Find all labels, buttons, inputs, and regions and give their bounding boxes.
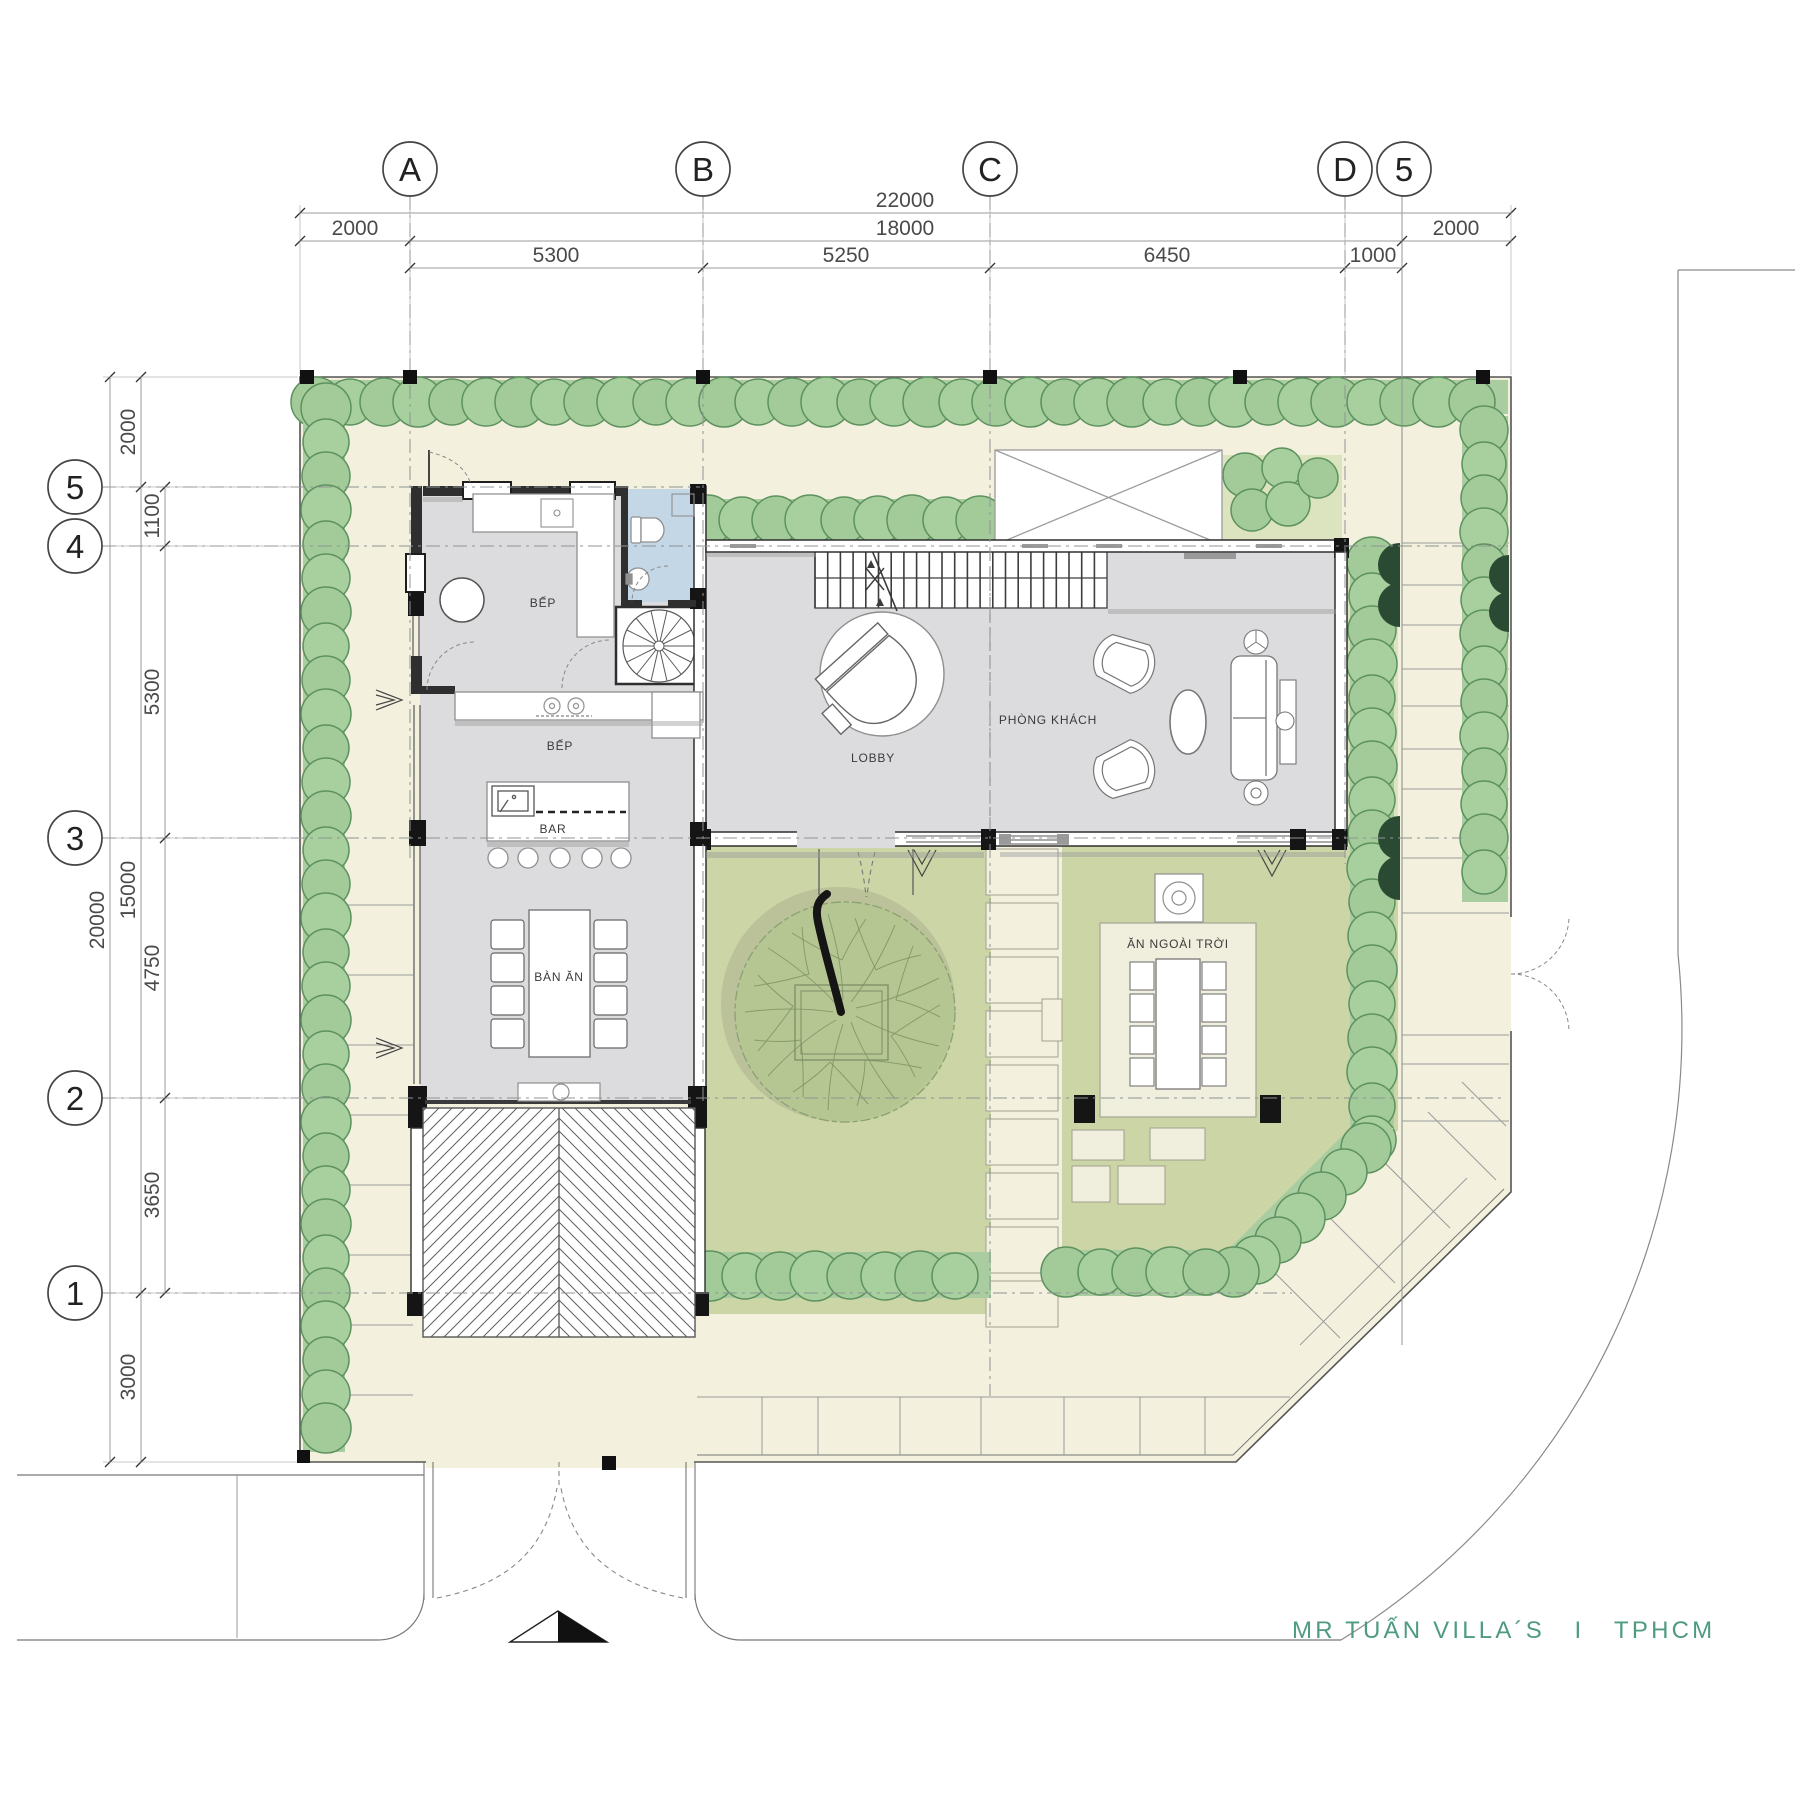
svg-text:1000: 1000 — [1350, 244, 1397, 267]
svg-text:C: C — [978, 151, 1002, 188]
svg-text:BAR: BAR — [539, 822, 566, 836]
svg-text:LOBBY: LOBBY — [851, 751, 895, 765]
svg-text:1: 1 — [66, 1275, 84, 1312]
svg-text:5300: 5300 — [141, 669, 164, 716]
svg-text:BÀN ĂN: BÀN ĂN — [534, 969, 583, 984]
svg-text:18000: 18000 — [876, 217, 934, 240]
svg-text:ĂN NGOÀI TRỜI: ĂN NGOÀI TRỜI — [1127, 936, 1229, 951]
svg-text:PHÒNG KHÁCH: PHÒNG KHÁCH — [999, 712, 1097, 727]
svg-text:BẾP: BẾP — [547, 738, 573, 753]
svg-text:BẾP: BẾP — [530, 595, 556, 610]
svg-text:6450: 6450 — [1144, 244, 1191, 267]
svg-text:2000: 2000 — [117, 409, 140, 456]
svg-text:5250: 5250 — [823, 244, 870, 267]
svg-text:3: 3 — [66, 820, 84, 857]
svg-text:2000: 2000 — [332, 217, 379, 240]
svg-text:4: 4 — [66, 528, 84, 565]
svg-text:MR TUẤN VILLA´S I TPHCM: MR TUẤN VILLA´S I TPHCM — [1292, 1616, 1715, 1644]
svg-text:D: D — [1333, 151, 1357, 188]
svg-text:20000: 20000 — [86, 891, 109, 949]
svg-text:1100: 1100 — [141, 493, 164, 538]
svg-text:5300: 5300 — [533, 244, 580, 267]
svg-text:3000: 3000 — [117, 1354, 140, 1401]
svg-text:B: B — [692, 151, 714, 188]
svg-text:4750: 4750 — [141, 945, 164, 992]
svg-text:3650: 3650 — [141, 1172, 164, 1219]
svg-text:5: 5 — [66, 469, 84, 506]
svg-text:2000: 2000 — [1433, 217, 1480, 240]
svg-text:15000: 15000 — [117, 861, 140, 919]
svg-text:5: 5 — [1395, 151, 1413, 188]
svg-text:22000: 22000 — [876, 189, 934, 212]
svg-text:A: A — [399, 151, 421, 188]
svg-text:2: 2 — [66, 1080, 84, 1117]
